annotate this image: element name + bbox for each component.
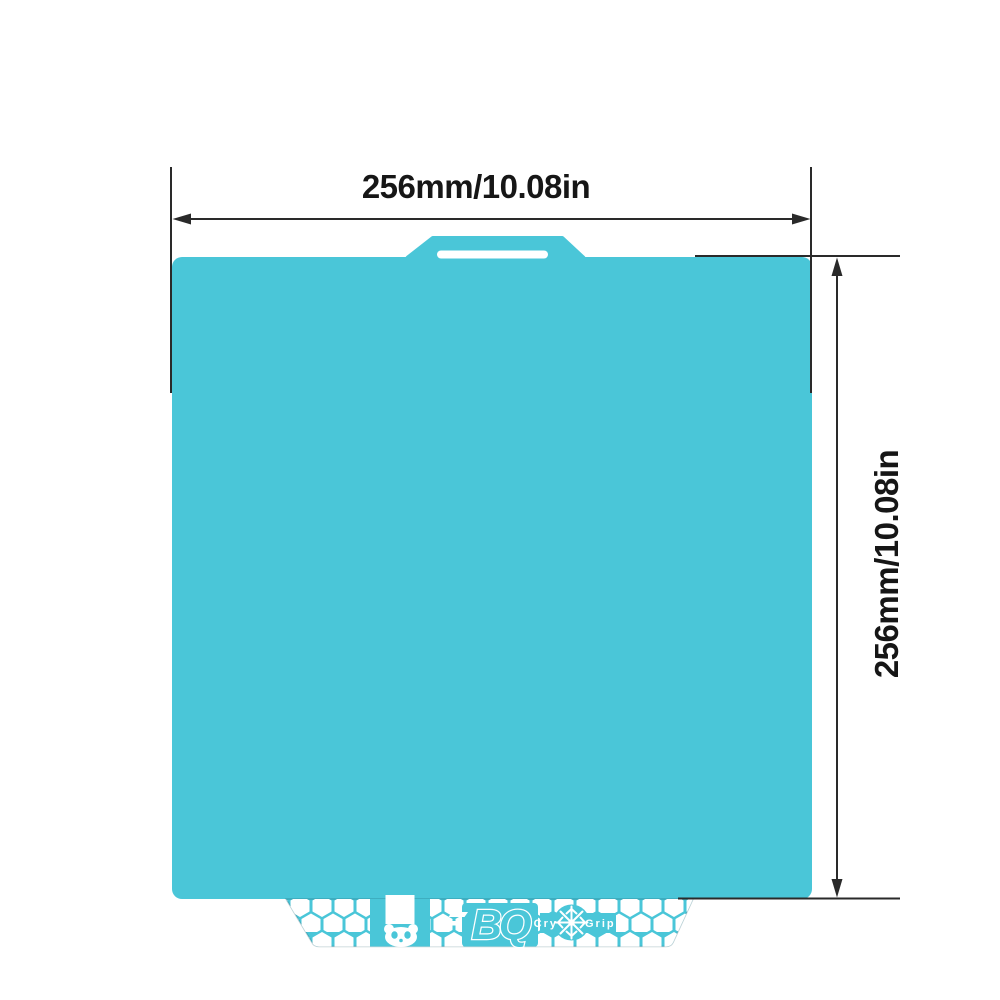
bq-logo-text: BQ: [472, 901, 531, 949]
diagram-illustration: BQ Cry Grip: [0, 0, 1000, 1000]
snowflake-icon: [556, 907, 588, 939]
plate-surface: [172, 257, 812, 899]
build-plate: [172, 239, 812, 900]
cryo-text-right: Grip: [585, 918, 616, 930]
tab-slot: [437, 251, 548, 259]
arrowhead-up: [832, 258, 843, 277]
product-dimension-diagram: BQ Cry Grip: [0, 0, 1000, 1000]
arrowhead-down: [832, 879, 843, 898]
top-dimension-label: 256mm/10.08in: [326, 170, 626, 204]
panda-icon: [384, 924, 418, 947]
arrowhead-right: [792, 214, 811, 225]
arrowhead-left: [173, 214, 192, 225]
cryo-text-left: Cry: [534, 918, 558, 930]
square-mark-icon: [386, 895, 415, 924]
honeycomb-skirt: BQ Cry Grip: [286, 895, 693, 949]
right-dimension-label: 256mm/10.08in: [870, 414, 904, 714]
